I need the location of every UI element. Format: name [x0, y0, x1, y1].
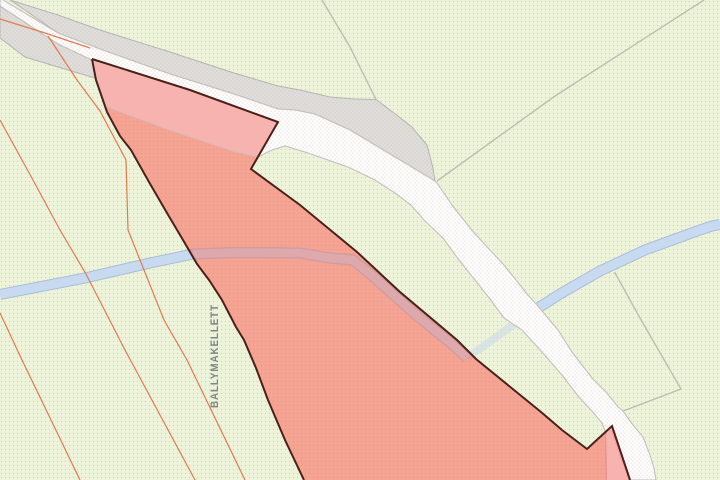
svg-text:BALLYMAKELLETT: BALLYMAKELLETT — [209, 304, 221, 408]
